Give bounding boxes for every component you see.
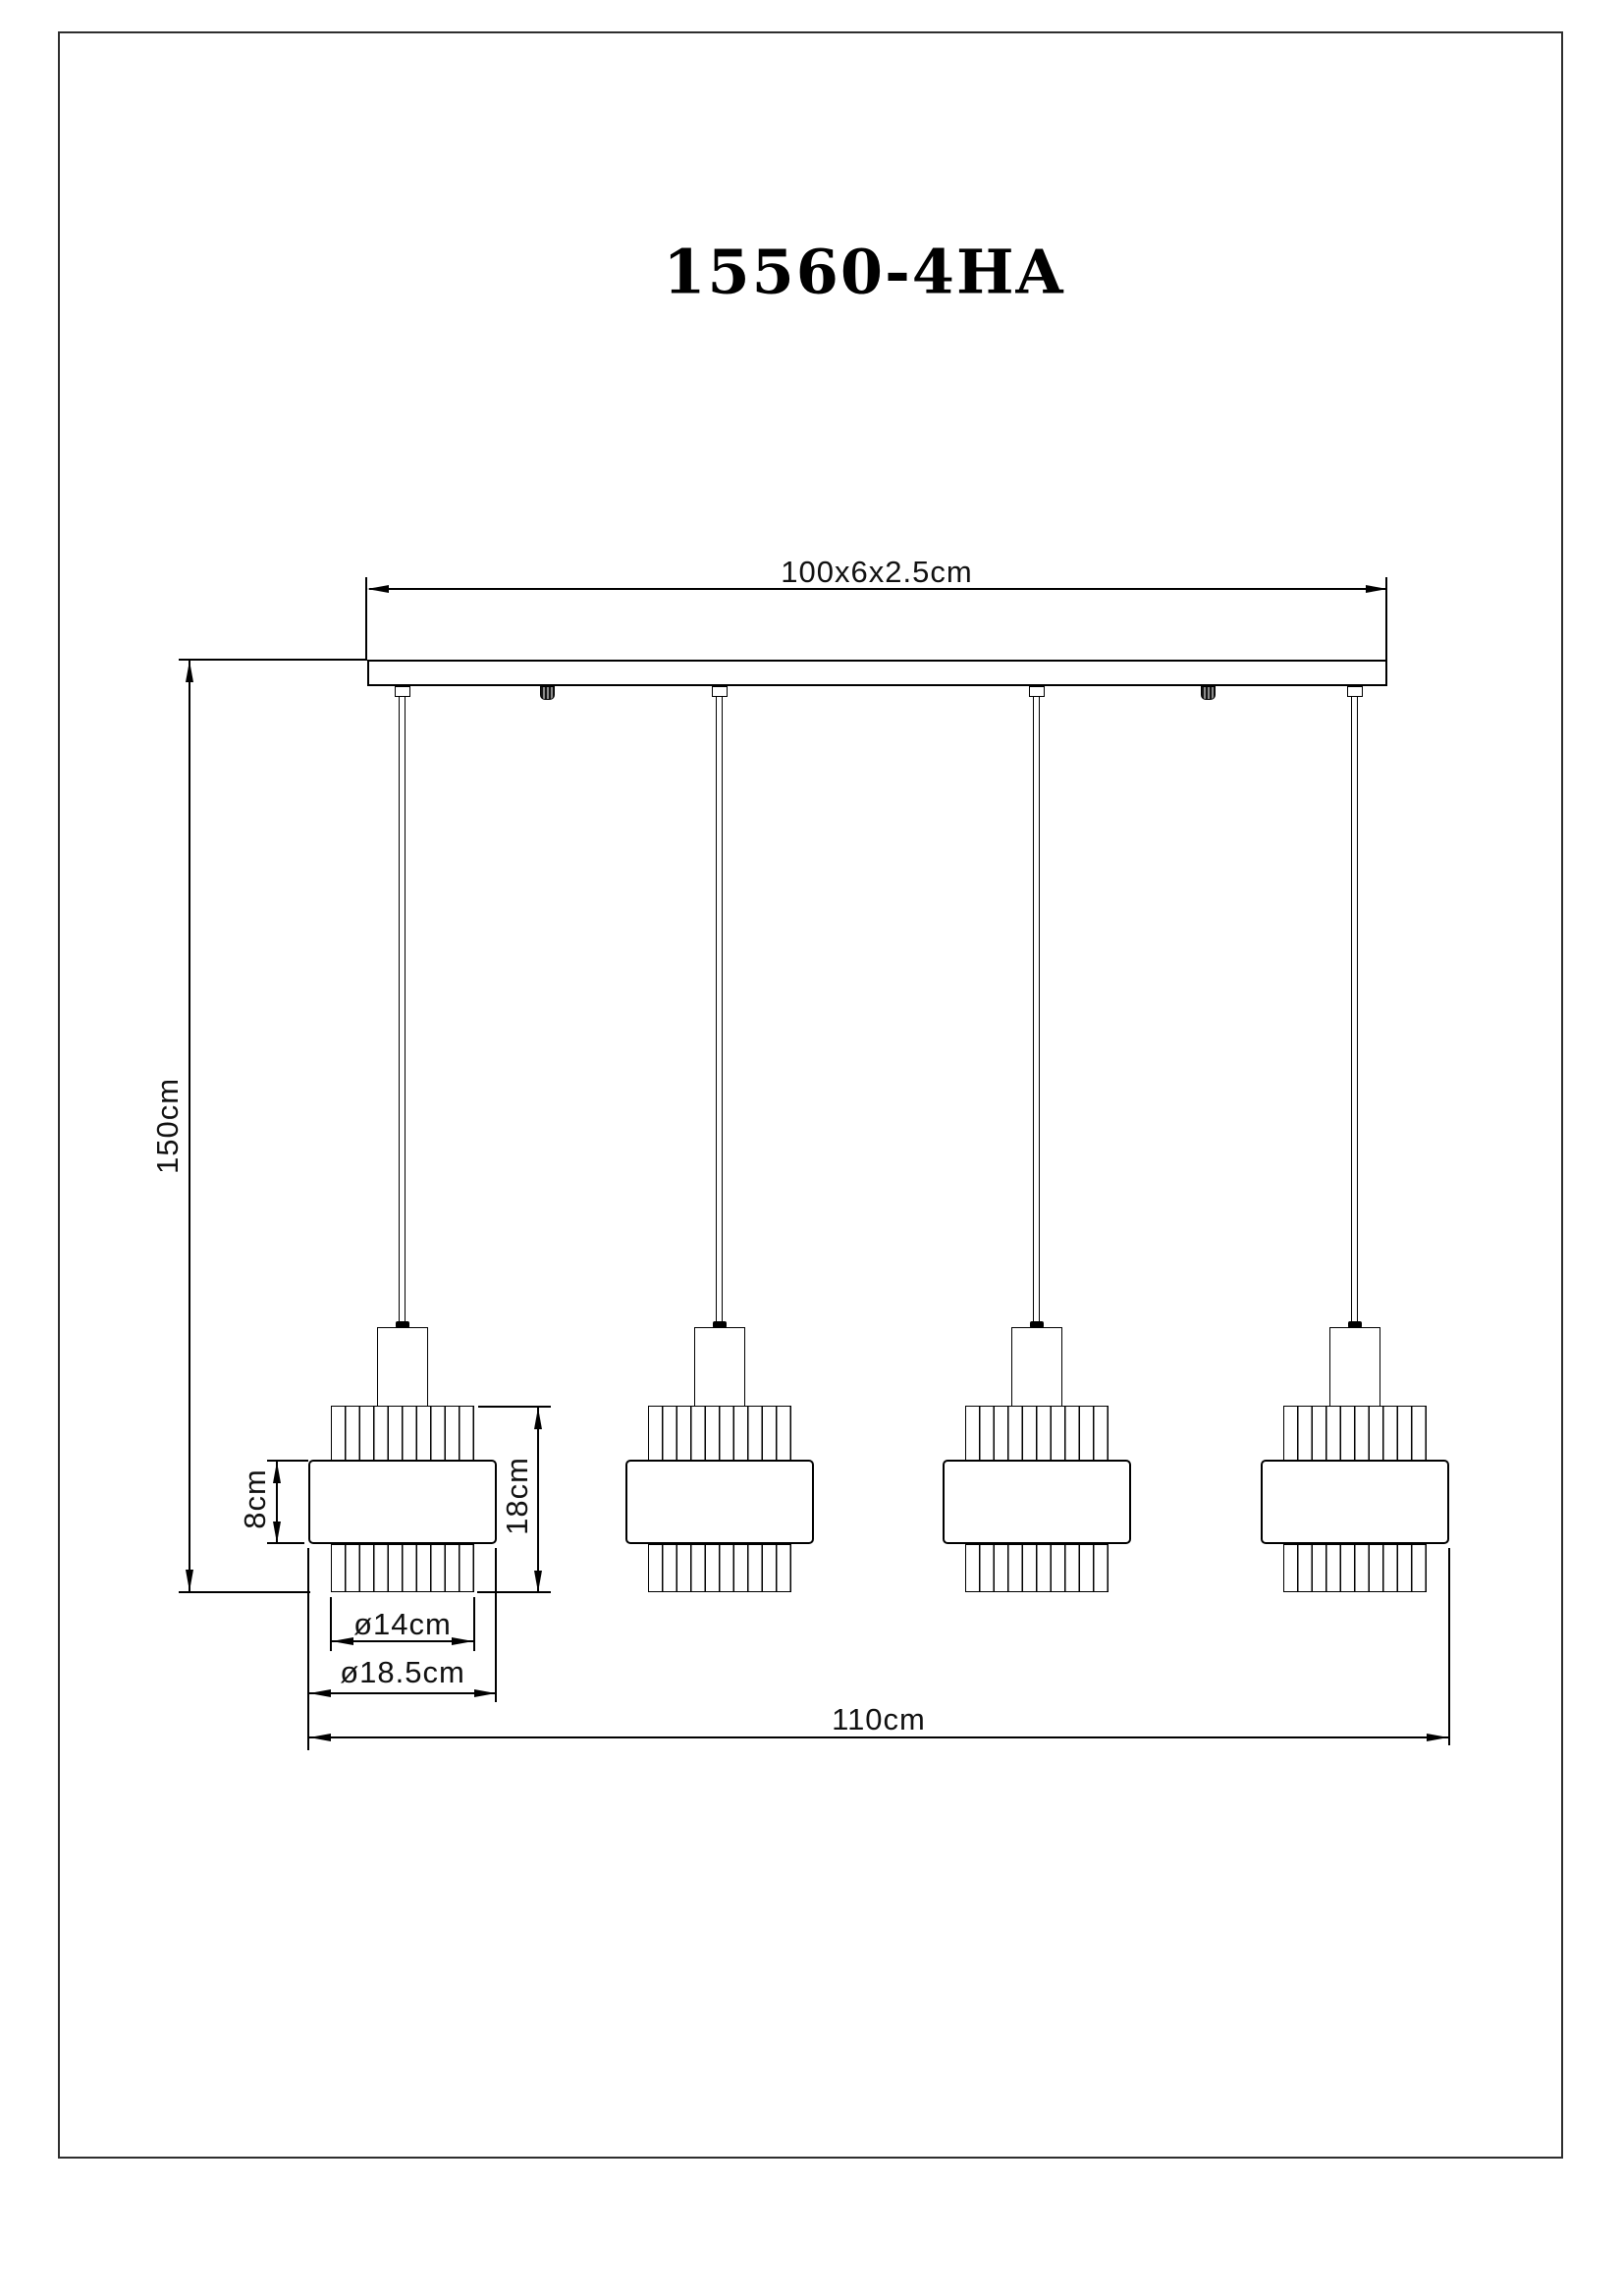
dim-arrow-down-icon	[186, 1570, 193, 1591]
pendant-cable	[716, 696, 723, 1323]
shade-bottom-ribs	[331, 1544, 474, 1592]
dim-outer-line	[309, 1692, 496, 1694]
dim-canopy-label: 100x6x2.5cm	[781, 555, 972, 590]
dim-inner-ext-right	[473, 1597, 475, 1651]
mounting-screw	[1201, 686, 1216, 700]
dim-arrow-left-icon	[309, 1689, 331, 1697]
dim-arrow-left-icon	[367, 585, 389, 593]
shade-middle-band	[1261, 1460, 1449, 1544]
shade-top-ribs	[1283, 1406, 1427, 1461]
dim-drop-line	[189, 661, 190, 1591]
canopy-bar	[367, 660, 1387, 686]
dim-arrow-right-icon	[452, 1637, 473, 1645]
shade-bottom-ribs	[1283, 1544, 1427, 1592]
drawing-sheet: 15560-4HA	[0, 0, 1623, 2296]
lamp-socket	[377, 1327, 428, 1407]
pendant-cable	[1351, 696, 1358, 1323]
dim-arrow-right-icon	[1366, 585, 1387, 593]
dim-overall-ext-left	[307, 1548, 309, 1750]
dim-arrow-left-icon	[332, 1637, 353, 1645]
dim-outer-ext-right	[495, 1548, 497, 1702]
dim-arrow-down-icon	[534, 1571, 542, 1592]
dim-arrow-right-icon	[474, 1689, 496, 1697]
dim-arrow-up-icon	[186, 661, 193, 682]
shade-top-ribs	[648, 1406, 791, 1461]
dim-arrow-up-icon	[534, 1408, 542, 1429]
dim-band-label: 8cm	[238, 1468, 273, 1529]
mounting-screw	[540, 686, 555, 700]
dim-arrow-up-icon	[273, 1462, 281, 1483]
shade-middle-band	[308, 1460, 497, 1544]
shade-bottom-ribs	[965, 1544, 1109, 1592]
dim-drop-label: 150cm	[150, 1078, 186, 1174]
dim-arrow-right-icon	[1427, 1734, 1448, 1741]
dim-outer-label: ø18.5cm	[340, 1655, 465, 1690]
lamp-socket	[694, 1327, 745, 1407]
dim-shade-line	[537, 1407, 539, 1592]
pendant-cable	[399, 696, 406, 1323]
dim-arrow-left-icon	[309, 1734, 331, 1741]
drawing-title: 15560-4HA	[663, 237, 1064, 308]
shade-bottom-ribs	[648, 1544, 791, 1592]
dim-drop-ext-bottom	[179, 1591, 310, 1593]
pendant-cable	[1033, 696, 1040, 1323]
dim-overall-ext-right	[1448, 1548, 1450, 1745]
pendant-lamp	[625, 685, 814, 1593]
dim-drop-ext-top	[179, 659, 367, 661]
pendant-lamp	[308, 685, 497, 1593]
dim-arrow-down-icon	[273, 1522, 281, 1543]
shade-top-ribs	[331, 1406, 474, 1461]
dim-inner-label: ø14cm	[353, 1607, 452, 1642]
shade-middle-band	[943, 1460, 1131, 1544]
pendant-lamp	[1261, 685, 1449, 1593]
dim-shade-label: 18cm	[500, 1457, 535, 1535]
shade-middle-band	[625, 1460, 814, 1544]
shade-top-ribs	[965, 1406, 1109, 1461]
lamp-socket	[1329, 1327, 1380, 1407]
lamp-socket	[1011, 1327, 1062, 1407]
pendant-lamp	[943, 685, 1131, 1593]
dim-overall-label: 110cm	[832, 1702, 926, 1737]
